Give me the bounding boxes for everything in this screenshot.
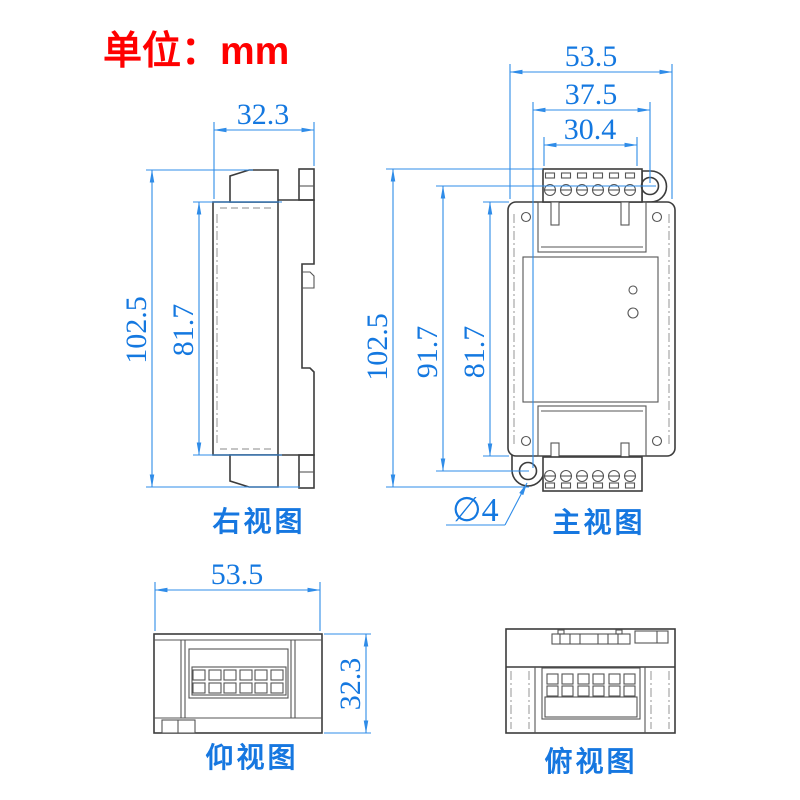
dim-bottom-depth-text: 32.3	[334, 658, 367, 711]
right-view-body	[213, 202, 278, 455]
dimension-drawing-svg: 32.3 102.5 81.7 右视图	[0, 0, 800, 800]
terminal-housing-top-view	[542, 668, 640, 719]
din-clip-right-view	[278, 169, 314, 488]
bottom-view-label: 仰视图	[205, 742, 298, 773]
dim-front-terminal-width-text: 30.4	[564, 113, 617, 146]
dim-front-hole-span-text: 37.5	[565, 78, 618, 111]
front-view-label: 主视图	[552, 507, 645, 538]
terminal-housing	[189, 649, 288, 698]
dim-bottom-width-text: 53.5	[211, 558, 264, 591]
top-view: 俯视图	[506, 629, 675, 777]
terminal-block-bottom-side	[230, 455, 278, 487]
dim-front-body-height-text: 81.7	[458, 326, 491, 379]
dim-front-body-height: 81.7	[458, 202, 509, 456]
dim-hole-diameter-text: ∅4	[452, 492, 499, 529]
din-plate	[278, 200, 314, 455]
bottom-view: 53.5 32.3 仰视图	[154, 558, 371, 773]
right-view-label: 右视图	[212, 506, 305, 537]
dim-bottom-depth: 32.3	[324, 634, 371, 733]
dim-right-width-text: 32.3	[237, 98, 290, 131]
top-view-label: 俯视图	[544, 745, 637, 777]
dim-bottom-width: 53.5	[155, 558, 320, 631]
right-view: 32.3 102.5 81.7 右视图	[120, 98, 314, 537]
latch-tab	[621, 443, 629, 458]
drawing-canvas: 32.3 102.5 81.7 右视图	[0, 0, 800, 800]
latch-tab	[551, 443, 559, 458]
dim-front-overall-width-text: 53.5	[565, 40, 618, 73]
dim-front-terminal-width: 30.4	[544, 113, 637, 166]
din-hook-upper	[302, 272, 314, 288]
dim-front-hole-height-text: 91.7	[411, 326, 444, 379]
latch-tab	[621, 202, 629, 225]
unit-label: 单位：mm	[103, 30, 289, 73]
dim-right-body-height-text: 81.7	[167, 304, 200, 357]
din-tab-top	[299, 169, 314, 200]
terminal-block-top-side	[230, 170, 278, 202]
mounting-ear-bottom	[512, 452, 544, 486]
latch-tab	[551, 202, 559, 225]
dim-front-overall-height-text: 102.5	[361, 313, 394, 381]
dim-hole-diameter-callout: ∅4	[446, 483, 527, 529]
front-view: 53.5 37.5 30.4 102.5 91.7	[361, 40, 675, 538]
dim-right-overall-height-text: 102.5	[120, 296, 153, 364]
